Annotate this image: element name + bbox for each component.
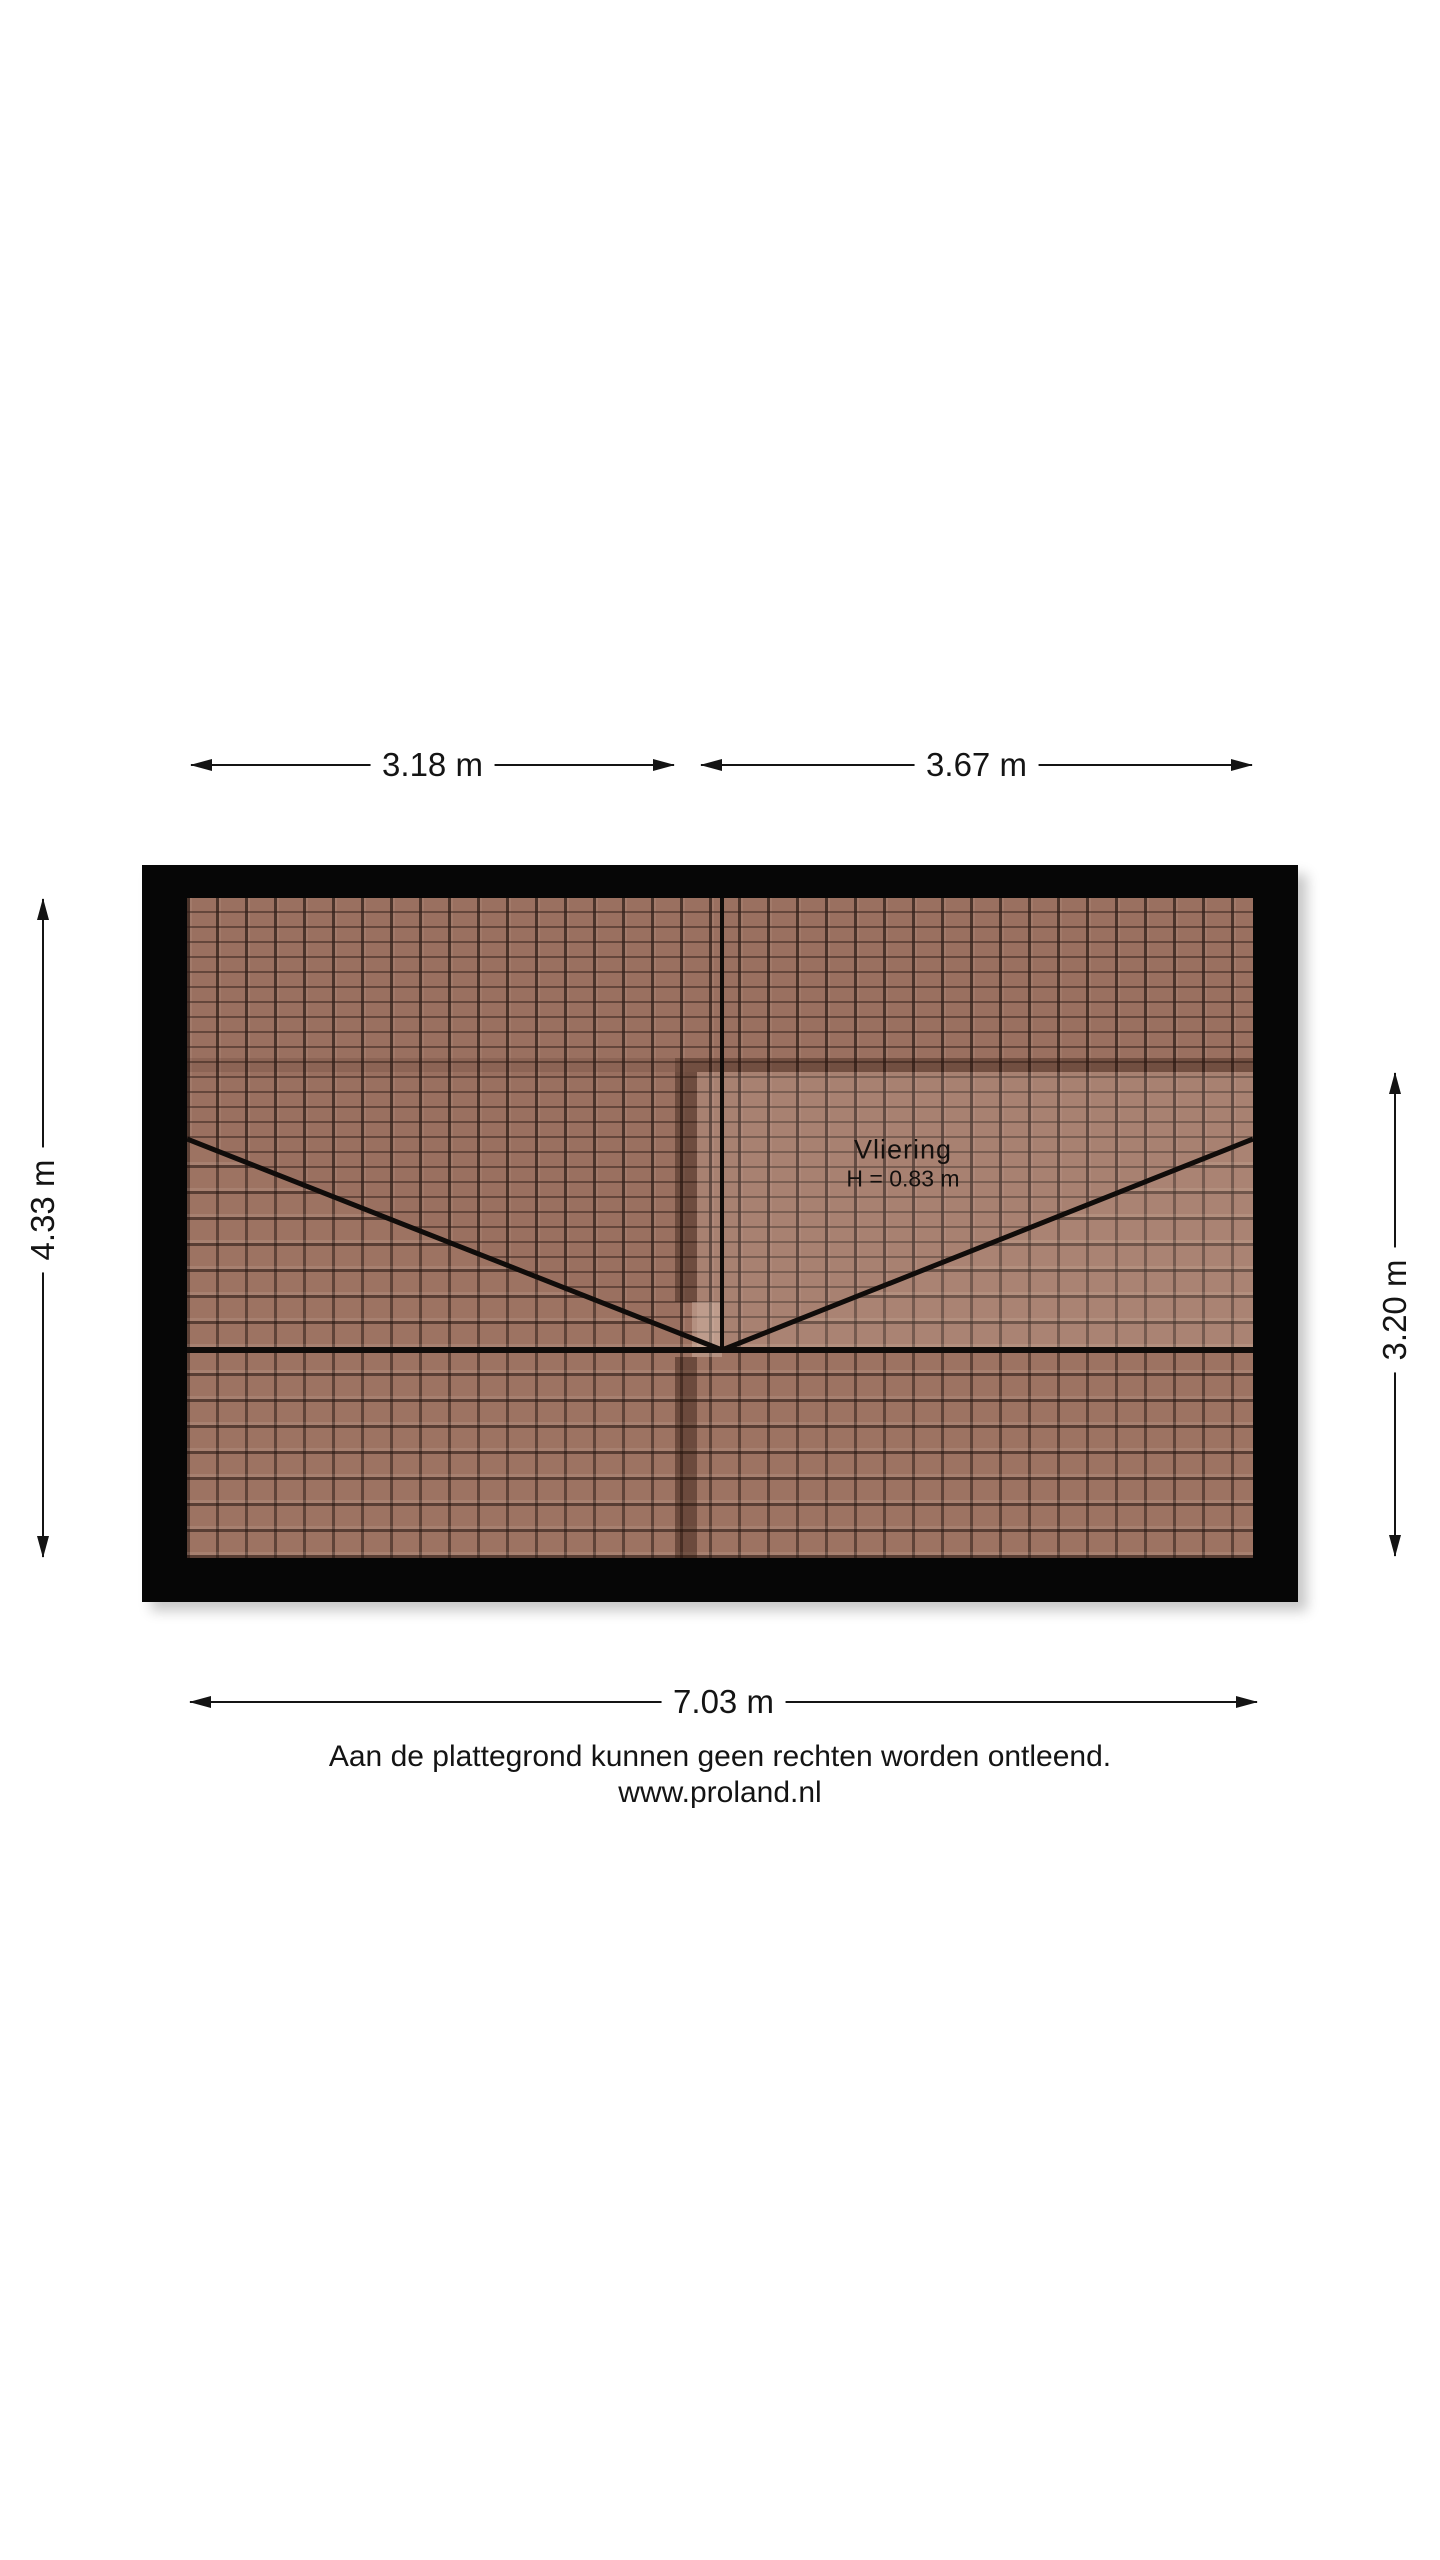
dimension-left: 4.33 m (32, 898, 54, 1558)
dimension-bottom: 7.03 m (189, 1683, 1258, 1721)
floor-plan: Vliering H = 0.83 m (142, 865, 1298, 1602)
dimension-label: 3.20 m (1376, 1248, 1414, 1373)
arrow-down-icon (1389, 1535, 1401, 1557)
arrow-right-icon (1236, 1696, 1258, 1708)
arrow-right-icon (1231, 759, 1253, 771)
hip-line-left (187, 1139, 722, 1350)
footer: Aan de plattegrond kunnen geen rechten w… (0, 1739, 1440, 1811)
dimension-label: 4.33 m (24, 1148, 62, 1273)
arrow-left-icon (700, 759, 722, 771)
room-height-label: H = 0.83 m (846, 1166, 959, 1193)
roof-plan-interior: Vliering H = 0.83 m (187, 898, 1253, 1558)
room-label: Vliering (854, 1135, 952, 1166)
website-text: www.proland.nl (0, 1775, 1440, 1811)
dimension-label: 3.67 m (914, 746, 1039, 784)
disclaimer-text: Aan de plattegrond kunnen geen rechten w… (0, 1739, 1440, 1775)
arrow-up-icon (37, 898, 49, 920)
arrow-down-icon (37, 1536, 49, 1558)
dimension-top-right: 3.67 m (700, 746, 1253, 784)
hip-line-right (722, 1139, 1253, 1350)
dimension-label: 3.18 m (370, 746, 495, 784)
arrow-right-icon (653, 759, 675, 771)
arrow-left-icon (190, 759, 212, 771)
arrow-left-icon (189, 1696, 211, 1708)
dimension-label: 7.03 m (661, 1683, 786, 1721)
dimension-right: 3.20 m (1384, 1072, 1406, 1557)
arrow-up-icon (1389, 1072, 1401, 1094)
roof-lines (187, 898, 1253, 1558)
dimension-top-left: 3.18 m (190, 746, 675, 784)
